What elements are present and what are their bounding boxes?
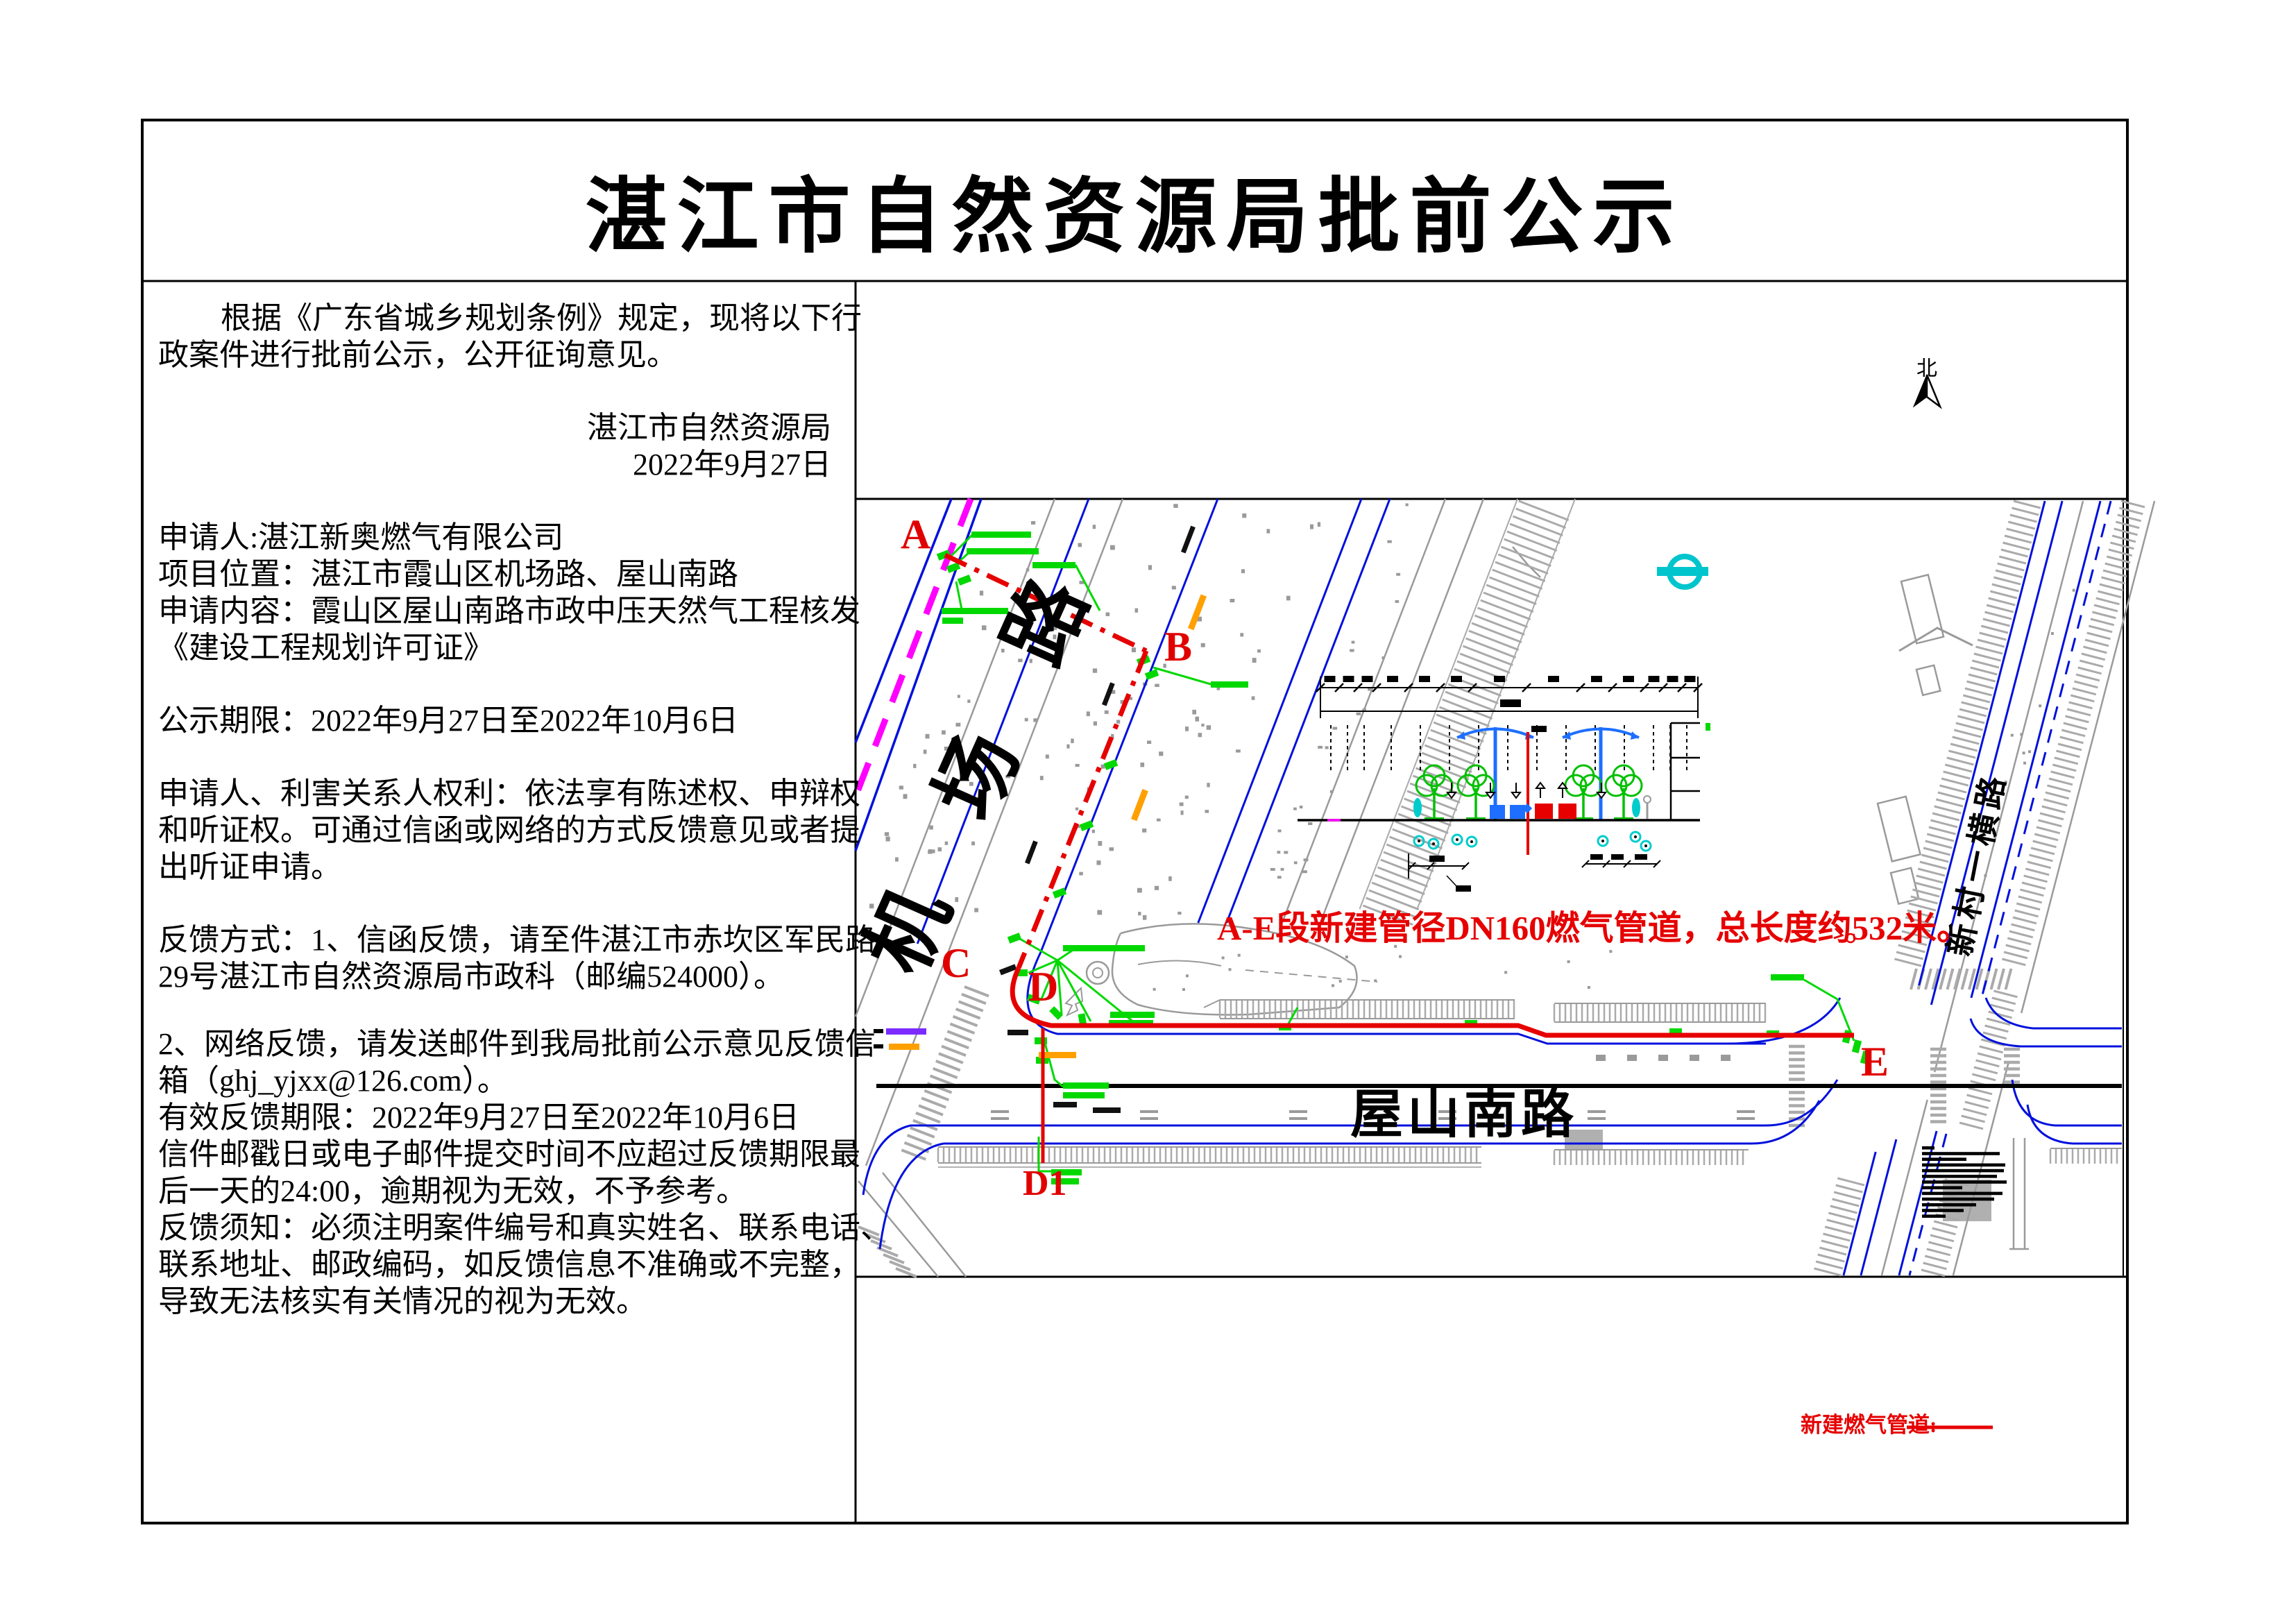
point-label-d: D	[1028, 966, 1058, 1008]
feedback-notes-line: 反馈须知：必须注明案件编号和真实姓名、联系电话、	[158, 1209, 844, 1246]
road-cross-section-detail	[1298, 676, 1710, 892]
notice-line: 政案件进行批前公示，公开征询意见。	[158, 337, 844, 373]
feedback-deadline-line: 有效反馈期限：2022年9月27日至2022年10月6日	[158, 1099, 844, 1136]
issuer-name: 湛江市自然资源局	[158, 409, 844, 446]
feedback-email-line: 箱（ghj_yjxx@126.com）。	[158, 1062, 844, 1099]
notice-line: 根据《广东省城乡规划条例》规定，现将以下行	[158, 300, 844, 337]
survey-circle-icon	[1657, 556, 1708, 587]
feedback-mail-line: 29号湛江市自然资源局市政科（邮编524000）。	[158, 958, 844, 995]
feedback-notes-line: 联系地址、邮政编码，如反馈信息不准确或不完整，	[158, 1246, 844, 1283]
rights-line: 申请人、利害关系人权利：依法享有陈述权、申辩权	[158, 775, 844, 812]
issue-date: 2022年9月27日	[158, 446, 844, 483]
rights-line: 出听证申请。	[158, 849, 844, 885]
north-label: 北	[1916, 351, 1937, 382]
publicity-period-line: 公示期限：2022年9月27日至2022年10月6日	[158, 702, 844, 739]
point-label-a: A	[901, 513, 930, 555]
point-label-c: C	[941, 942, 971, 984]
content-line: 申请内容：霞山区屋山南路市政中压天然气工程核发	[158, 593, 844, 629]
page-title: 湛江市自然资源局批前公示	[142, 150, 2127, 269]
legend-label: 新建燃气管道:	[1801, 1407, 1937, 1438]
content-line: 《建设工程规划许可证》	[158, 629, 844, 666]
applicant-line: 申请人:湛江新奥燃气有限公司	[158, 519, 844, 556]
location-line: 项目位置：湛江市霞山区机场路、屋山南路	[158, 556, 844, 593]
feedback-email-line: 2、网络反馈，请发送邮件到我局批前公示意见反馈信	[158, 1026, 844, 1062]
public-notice-page: { "title": "湛江市自然资源局批前公示", "notice": { "…	[0, 0, 2296, 1623]
point-label-d1: D1	[1023, 1166, 1067, 1202]
feedback-mail-line: 反馈方式：1、信函反馈，请至件湛江市赤坎区军民路	[158, 921, 844, 958]
point-label-e: E	[1861, 1041, 1889, 1082]
deadline-rule-line: 信件邮戳日或电子邮件提交时间不应超过反馈期限最	[158, 1136, 844, 1173]
road-name-wushan-south: 屋山南路	[1350, 1071, 1578, 1148]
deadline-rule-line: 后一天的24:00，逾期视为无效，不予参考。	[158, 1173, 844, 1209]
notice-body: 根据《广东省城乡规划条例》规定，现将以下行 政案件进行批前公示，公开征询意见。 …	[158, 300, 844, 1320]
rights-line: 和听证权。可通过信函或网络的方式反馈意见或者提	[158, 812, 844, 849]
point-label-b: B	[1164, 626, 1192, 668]
feedback-notes-line: 导致无法核实有关情况的视为无效。	[158, 1283, 844, 1320]
pipeline-annotation: A-E段新建管径DN160燃气管道，总长度约532米。	[1217, 901, 1971, 950]
